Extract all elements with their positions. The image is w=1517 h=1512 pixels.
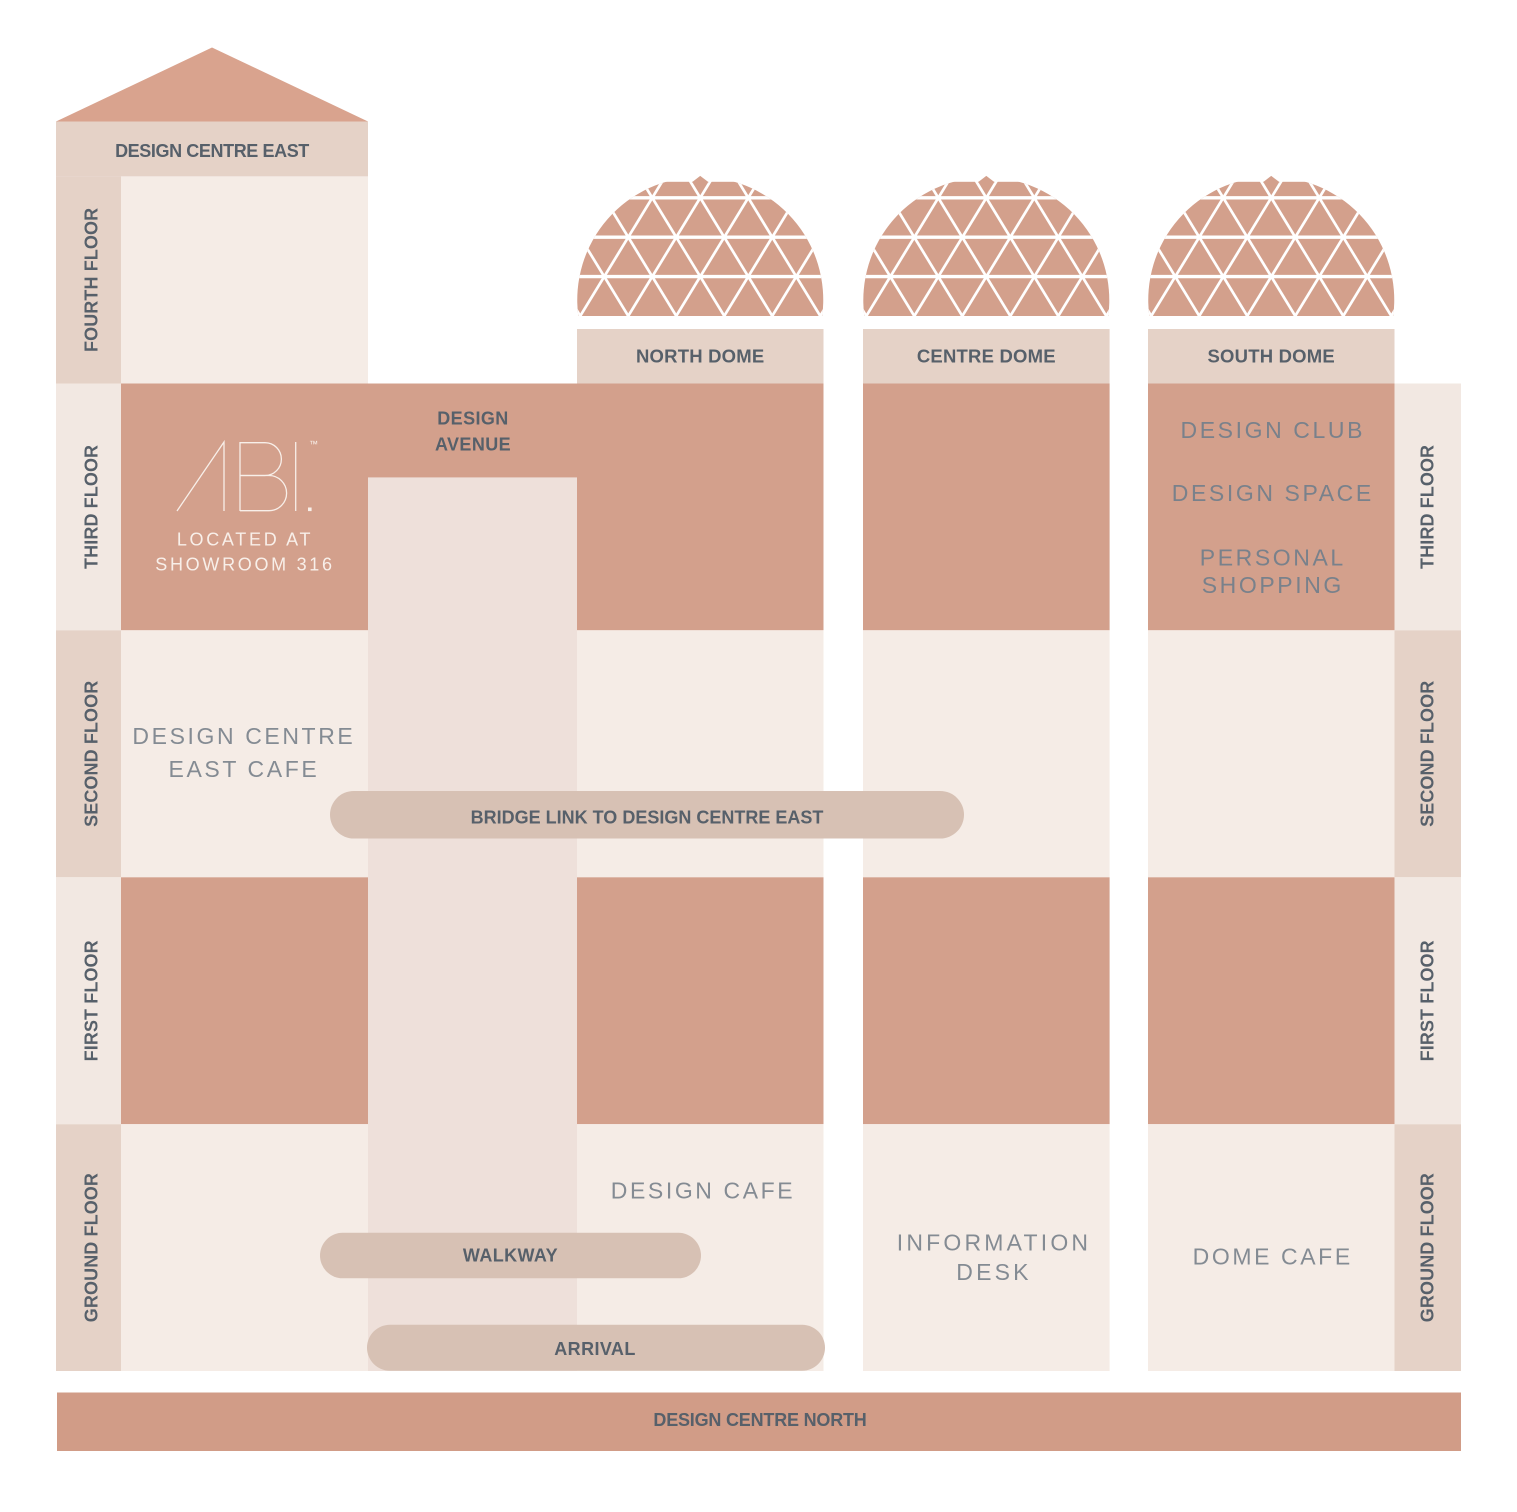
svg-text:DESIGN CAFE: DESIGN CAFE [611, 1177, 796, 1203]
svg-text:SHOPPING: SHOPPING [1202, 572, 1344, 598]
svg-text:DOME CAFE: DOME CAFE [1193, 1243, 1353, 1269]
svg-text:SOUTH DOME: SOUTH DOME [1208, 345, 1335, 366]
svg-text:FIRST FLOOR: FIRST FLOOR [1417, 940, 1437, 1061]
svg-text:DESIGN CENTRE NORTH: DESIGN CENTRE NORTH [653, 1410, 866, 1430]
svg-text:DESIGN CLUB: DESIGN CLUB [1181, 417, 1366, 443]
svg-text:™: ™ [309, 439, 318, 449]
svg-text:GROUND FLOOR: GROUND FLOOR [1417, 1173, 1437, 1322]
svg-text:GROUND FLOOR: GROUND FLOOR [82, 1173, 102, 1322]
svg-text:DESIGN: DESIGN [437, 409, 508, 429]
svg-text:NORTH DOME: NORTH DOME [636, 345, 764, 366]
svg-text:SECOND FLOOR: SECOND FLOOR [82, 681, 102, 827]
svg-text:DESIGN CENTRE: DESIGN CENTRE [132, 723, 355, 749]
svg-text:SHOWROOM 316: SHOWROOM 316 [155, 555, 334, 575]
svg-text:ARRIVAL: ARRIVAL [554, 1339, 635, 1359]
svg-text:FIRST FLOOR: FIRST FLOOR [82, 940, 102, 1061]
svg-text:FOURTH FLOOR: FOURTH FLOOR [82, 208, 102, 352]
svg-text:PERSONAL: PERSONAL [1200, 544, 1346, 570]
svg-text:THIRD FLOOR: THIRD FLOOR [1417, 445, 1437, 569]
svg-text:SECOND FLOOR: SECOND FLOOR [1417, 681, 1437, 827]
svg-text:THIRD FLOOR: THIRD FLOOR [82, 445, 102, 569]
svg-text:CENTRE DOME: CENTRE DOME [917, 345, 1056, 366]
svg-text:AVENUE: AVENUE [435, 435, 511, 455]
svg-text:LOCATED AT: LOCATED AT [177, 530, 313, 550]
svg-text:INFORMATION: INFORMATION [897, 1229, 1091, 1255]
svg-text:EAST CAFE: EAST CAFE [169, 756, 320, 782]
svg-text:DESIGN SPACE: DESIGN SPACE [1172, 480, 1374, 506]
svg-text:BRIDGE LINK TO DESIGN CENTRE E: BRIDGE LINK TO DESIGN CENTRE EAST [471, 808, 824, 828]
svg-text:DESK: DESK [956, 1259, 1031, 1285]
svg-text:WALKWAY: WALKWAY [463, 1246, 558, 1266]
svg-text:DESIGN CENTRE EAST: DESIGN CENTRE EAST [115, 141, 309, 161]
